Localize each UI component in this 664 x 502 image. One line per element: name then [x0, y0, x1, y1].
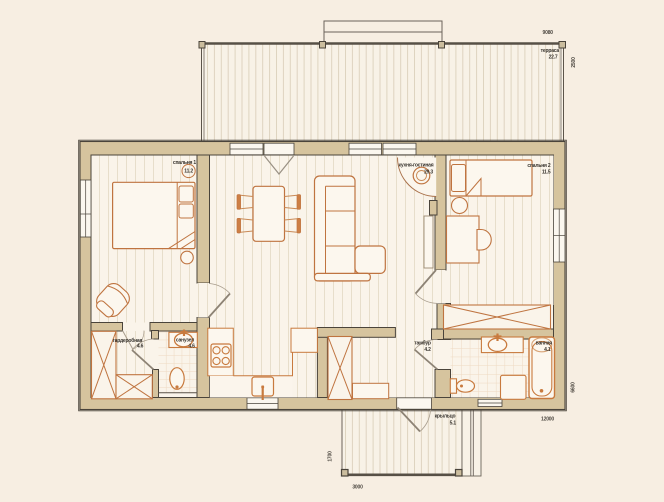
svg-text:4.2: 4.2	[424, 347, 431, 353]
svg-text:3000: 3000	[352, 485, 363, 491]
svg-text:5.1: 5.1	[450, 420, 457, 426]
svg-text:спальня 1: спальня 1	[173, 160, 197, 166]
svg-text:11.2: 11.2	[184, 169, 193, 175]
svg-text:11.5: 11.5	[542, 170, 551, 176]
svg-text:2500: 2500	[571, 57, 577, 68]
svg-text:9080: 9080	[543, 30, 554, 36]
svg-text:4.6: 4.6	[188, 344, 195, 350]
svg-text:12000: 12000	[541, 417, 554, 423]
svg-text:22.7: 22.7	[549, 55, 558, 61]
svg-text:крыльцо: крыльцо	[435, 413, 456, 419]
svg-text:1700: 1700	[328, 451, 334, 462]
svg-text:ванная: ванная	[536, 341, 553, 347]
svg-text:тамбур: тамбур	[414, 340, 431, 347]
svg-text:4.6: 4.6	[137, 344, 144, 350]
svg-text:29.3: 29.3	[424, 170, 433, 176]
svg-text:терраса: терраса	[541, 48, 560, 54]
svg-text:кухня-гостиная: кухня-гостиная	[399, 163, 434, 169]
svg-text:4.1: 4.1	[544, 347, 551, 353]
svg-text:спальня 2: спальня 2	[527, 163, 551, 169]
svg-text:6600: 6600	[571, 382, 577, 393]
